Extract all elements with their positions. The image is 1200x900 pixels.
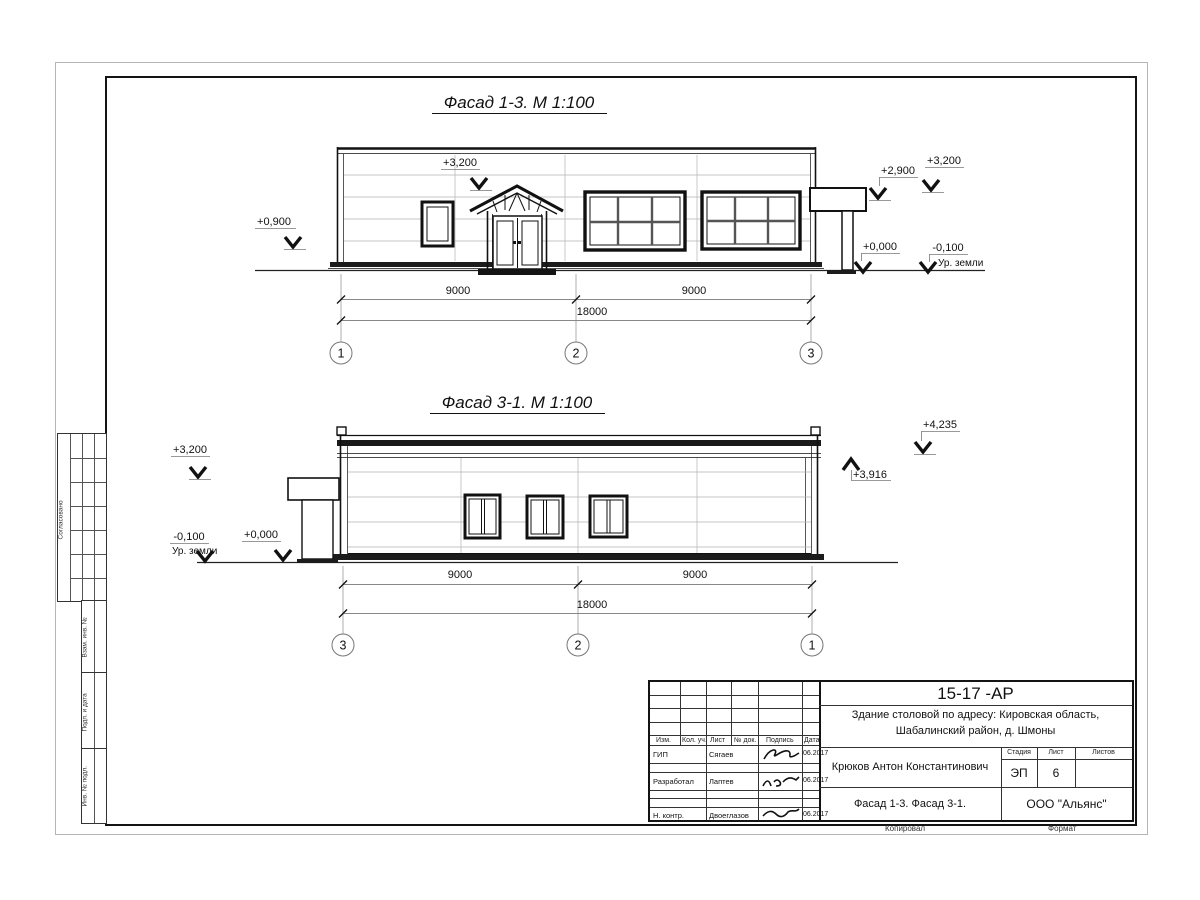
row-ncontr-name: Двоеглазов bbox=[709, 811, 749, 820]
mark-0900-left: +0,900 bbox=[257, 216, 291, 228]
col-list: Лист bbox=[710, 737, 725, 744]
drawing-sheet: Согласовано Взам. инв. № Подп. и дата Ин… bbox=[0, 0, 1200, 900]
row-ncontr-role: Н. контр. bbox=[653, 811, 684, 820]
col-kol: Кол. уч. bbox=[682, 737, 707, 744]
dim-18000: 18000 bbox=[577, 306, 608, 318]
signature-gip bbox=[760, 746, 802, 763]
sheet-num-value: 6 bbox=[1037, 766, 1075, 780]
entrance-porch bbox=[470, 186, 563, 275]
dim2-18000: 18000 bbox=[577, 599, 608, 611]
row-gip-role: ГИП bbox=[653, 750, 668, 759]
mark-3916: +3,916 bbox=[853, 469, 887, 481]
dim-9000-a: 9000 bbox=[446, 285, 470, 297]
col-date: Дата bbox=[804, 737, 820, 744]
window-f2-2 bbox=[527, 496, 563, 538]
doc-number: 15-17 -АР bbox=[819, 684, 1132, 704]
signature-ncontr bbox=[760, 804, 802, 821]
col-doc: № док. bbox=[734, 737, 756, 744]
mark-3200-right: +3,200 bbox=[927, 155, 961, 167]
side-canopy-left bbox=[288, 478, 339, 563]
dim-9000-b: 9000 bbox=[682, 285, 706, 297]
mark-3200-left: +3,200 bbox=[443, 157, 477, 169]
facade-3-1-drawing: Фасад 3-1. М 1:100 bbox=[170, 393, 960, 656]
window-large-2 bbox=[702, 192, 800, 249]
axis-2: 2 bbox=[573, 347, 580, 361]
dim2-9000-a: 9000 bbox=[448, 569, 472, 581]
window-f2-1 bbox=[465, 495, 500, 538]
axis2-1: 1 bbox=[809, 639, 816, 653]
row-dev-name: Лаптев bbox=[709, 777, 734, 786]
signature-dev bbox=[760, 773, 802, 790]
window-small bbox=[422, 202, 453, 246]
col-sign: Подпись bbox=[766, 737, 794, 744]
facade-3-1-title: Фасад 3-1. М 1:100 bbox=[442, 393, 593, 412]
row-dev-role: Разработал bbox=[653, 777, 694, 786]
row-dev-date: 06.2017 bbox=[803, 777, 828, 784]
mark-4235: +4,235 bbox=[923, 419, 957, 431]
mark-2900-right: +2,900 bbox=[881, 165, 915, 177]
mark-minus0100-f1: -0,100 bbox=[932, 242, 963, 254]
row-gip-name: Сягаев bbox=[709, 750, 733, 759]
sheet-label: Лист bbox=[1037, 749, 1075, 756]
facade-1-3-drawing: Фасад 1-3. М 1:100 bbox=[255, 93, 985, 364]
dimensions-f2: 9000 9000 18000 3 2 1 bbox=[332, 566, 823, 656]
col-izm: Изм. bbox=[656, 737, 671, 744]
project-line2: Шабалинский район, д. Шмоны bbox=[819, 725, 1132, 737]
stage-value: ЭП bbox=[1001, 766, 1037, 780]
drawing-name: Фасад 1-3. Фасад 3-1. bbox=[819, 798, 1001, 810]
axis2-3: 3 bbox=[340, 639, 347, 653]
window-f2-3 bbox=[590, 496, 627, 537]
row-gip-date: 06.2017 bbox=[803, 750, 828, 757]
copied-label: Копировал bbox=[885, 824, 925, 833]
side-canopy-right bbox=[810, 188, 866, 274]
mark-3200-f2: +3,200 bbox=[173, 444, 207, 456]
author-name: Крюков Антон Константинович bbox=[819, 761, 1001, 773]
dim2-9000-b: 9000 bbox=[683, 569, 707, 581]
format-label: Формат bbox=[1048, 824, 1076, 833]
mark-minus0100-f2: -0,100 bbox=[173, 531, 204, 543]
axis-1: 1 bbox=[338, 347, 345, 361]
dimensions-f1: 9000 9000 18000 1 2 3 bbox=[330, 274, 822, 364]
sheets-label: Листов bbox=[1075, 749, 1132, 756]
company-name: ООО "Альянс" bbox=[1001, 797, 1132, 811]
mark-0000-f2: +0,000 bbox=[244, 529, 278, 541]
title-block: Изм. Кол. уч. Лист № док. Подпись Дата Г… bbox=[648, 680, 1134, 822]
project-line1: Здание столовой по адресу: Кировская обл… bbox=[819, 709, 1132, 721]
mark-0000-f1: +0,000 bbox=[863, 241, 897, 253]
ground-label-f1: Ур. земли bbox=[938, 258, 983, 269]
axis2-2: 2 bbox=[575, 639, 582, 653]
stage-label: Стадия bbox=[1001, 749, 1037, 756]
window-large-1 bbox=[585, 192, 685, 250]
axis-3: 3 bbox=[808, 347, 815, 361]
row-ncontr-date: 06.2017 bbox=[803, 811, 828, 818]
facade-1-3-title: Фасад 1-3. М 1:100 bbox=[444, 93, 595, 112]
